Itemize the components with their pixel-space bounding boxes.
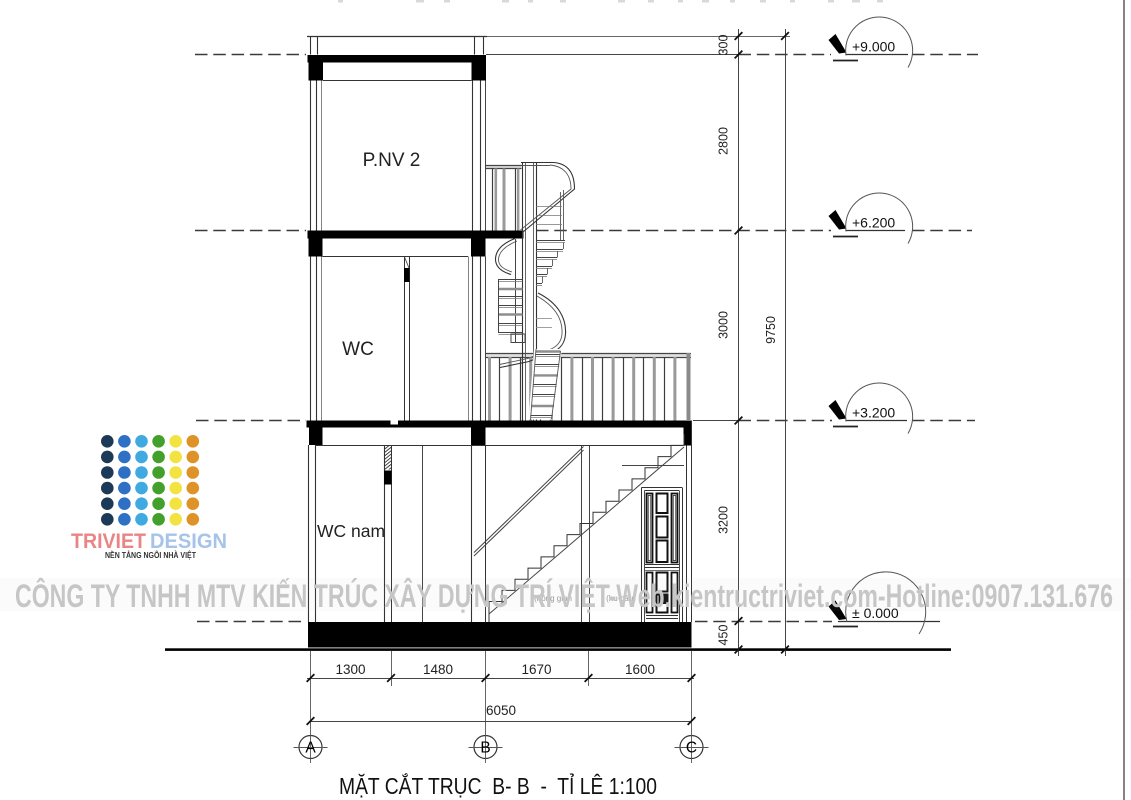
svg-text:+6.200: +6.200: [852, 215, 895, 231]
svg-text:WC nam: WC nam: [317, 521, 385, 541]
svg-text:P.NV 2: P.NV 2: [363, 150, 421, 171]
svg-text:+3.200: +3.200: [852, 405, 895, 421]
svg-text:A: A: [305, 740, 316, 757]
svg-text:2800: 2800: [717, 127, 731, 155]
svg-text:NỀN TẢNG NGÔI NHÀ VIỆT: NỀN TẢNG NGÔI NHÀ VIỆT: [105, 549, 197, 560]
svg-text:WC: WC: [342, 339, 374, 360]
svg-text:6050: 6050: [486, 703, 516, 718]
svg-text:+9.000: +9.000: [852, 39, 895, 55]
svg-text:1600: 1600: [625, 662, 655, 677]
svg-text:450: 450: [717, 625, 731, 646]
svg-text:1300: 1300: [335, 662, 365, 677]
svg-text:MẶT CẮT TRỤC B- B - TỈ LÊ 1: MẶT CẮT TRỤC B- B - TỈ LÊ 1:100: [339, 771, 657, 799]
svg-text:300: 300: [717, 35, 731, 56]
svg-text:C: C: [686, 740, 697, 757]
svg-text:3000: 3000: [717, 311, 731, 339]
svg-text:CÔNG TY TNHH MTV KIẾN TRÚC XÂY: CÔNG TY TNHH MTV KIẾN TRÚC XÂY DỰNG TRÍ …: [15, 576, 1113, 614]
svg-text:1670: 1670: [521, 662, 551, 677]
svg-text:B: B: [480, 740, 490, 757]
svg-text:1480: 1480: [423, 662, 453, 677]
svg-text:9750: 9750: [764, 316, 778, 344]
svg-text:3200: 3200: [717, 506, 731, 534]
